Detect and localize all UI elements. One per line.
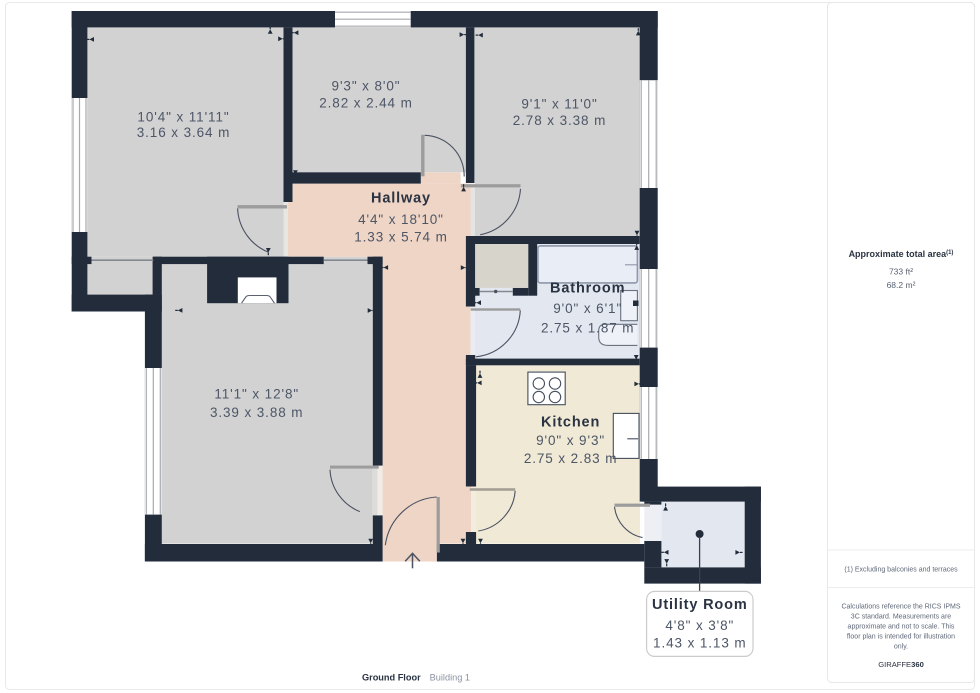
svg-text:9'0" x 9'3": 9'0" x 9'3" <box>536 433 605 448</box>
svg-text:4'8" x 3'8": 4'8" x 3'8" <box>665 618 734 633</box>
svg-text:Kitchen: Kitchen <box>541 415 600 431</box>
svg-text:2.78 x 3.38 m: 2.78 x 3.38 m <box>513 113 607 128</box>
svg-text:11'1" x 12'8": 11'1" x 12'8" <box>214 387 299 402</box>
svg-text:1.33 x 5.74 m: 1.33 x 5.74 m <box>354 230 448 245</box>
svg-text:9'1" x 11'0": 9'1" x 11'0" <box>521 97 597 112</box>
svg-text:2.75 x 2.83 m: 2.75 x 2.83 m <box>524 451 618 466</box>
svg-text:68.2 m²: 68.2 m² <box>887 280 916 290</box>
svg-text:Approximate total area(1): Approximate total area(1) <box>849 249 954 259</box>
svg-text:Bathroom: Bathroom <box>550 281 625 297</box>
svg-text:4'4" x 18'10": 4'4" x 18'10" <box>358 212 444 227</box>
svg-text:2.75 x 1.87 m: 2.75 x 1.87 m <box>541 321 635 336</box>
svg-text:Hallway: Hallway <box>371 191 431 207</box>
svg-text:9'3" x 8'0": 9'3" x 8'0" <box>332 79 401 94</box>
svg-text:3.39 x 3.88 m: 3.39 x 3.88 m <box>210 405 304 420</box>
svg-text:Calculations reference the RIC: Calculations reference the RICS IPMS <box>841 604 960 611</box>
svg-text:3.16 x 3.64 m: 3.16 x 3.64 m <box>137 125 231 140</box>
svg-text:only.: only. <box>894 644 908 651</box>
svg-text:floor plan is intended for ill: floor plan is intended for illustration <box>847 634 955 641</box>
svg-text:3C standard. Measurements are: 3C standard. Measurements are <box>851 614 951 621</box>
svg-text:2.82 x 2.44 m: 2.82 x 2.44 m <box>319 96 413 111</box>
svg-text:approximate and not to scale.: approximate and not to scale. This <box>848 624 955 631</box>
svg-text:Utility Room: Utility Room <box>652 597 748 613</box>
svg-text:(1) Excluding balconies and te: (1) Excluding balconies and terraces <box>844 567 958 574</box>
svg-text:9'0" x 6'1": 9'0" x 6'1" <box>553 301 622 316</box>
svg-text:10'4" x 11'11": 10'4" x 11'11" <box>137 110 229 125</box>
svg-text:Ground FloorBuilding 1: Ground FloorBuilding 1 <box>362 673 470 683</box>
svg-text:733 ft²: 733 ft² <box>889 267 913 277</box>
svg-text:GIRAFFE360: GIRAFFE360 <box>878 660 924 669</box>
svg-text:1.43 x 1.13 m: 1.43 x 1.13 m <box>653 635 747 650</box>
